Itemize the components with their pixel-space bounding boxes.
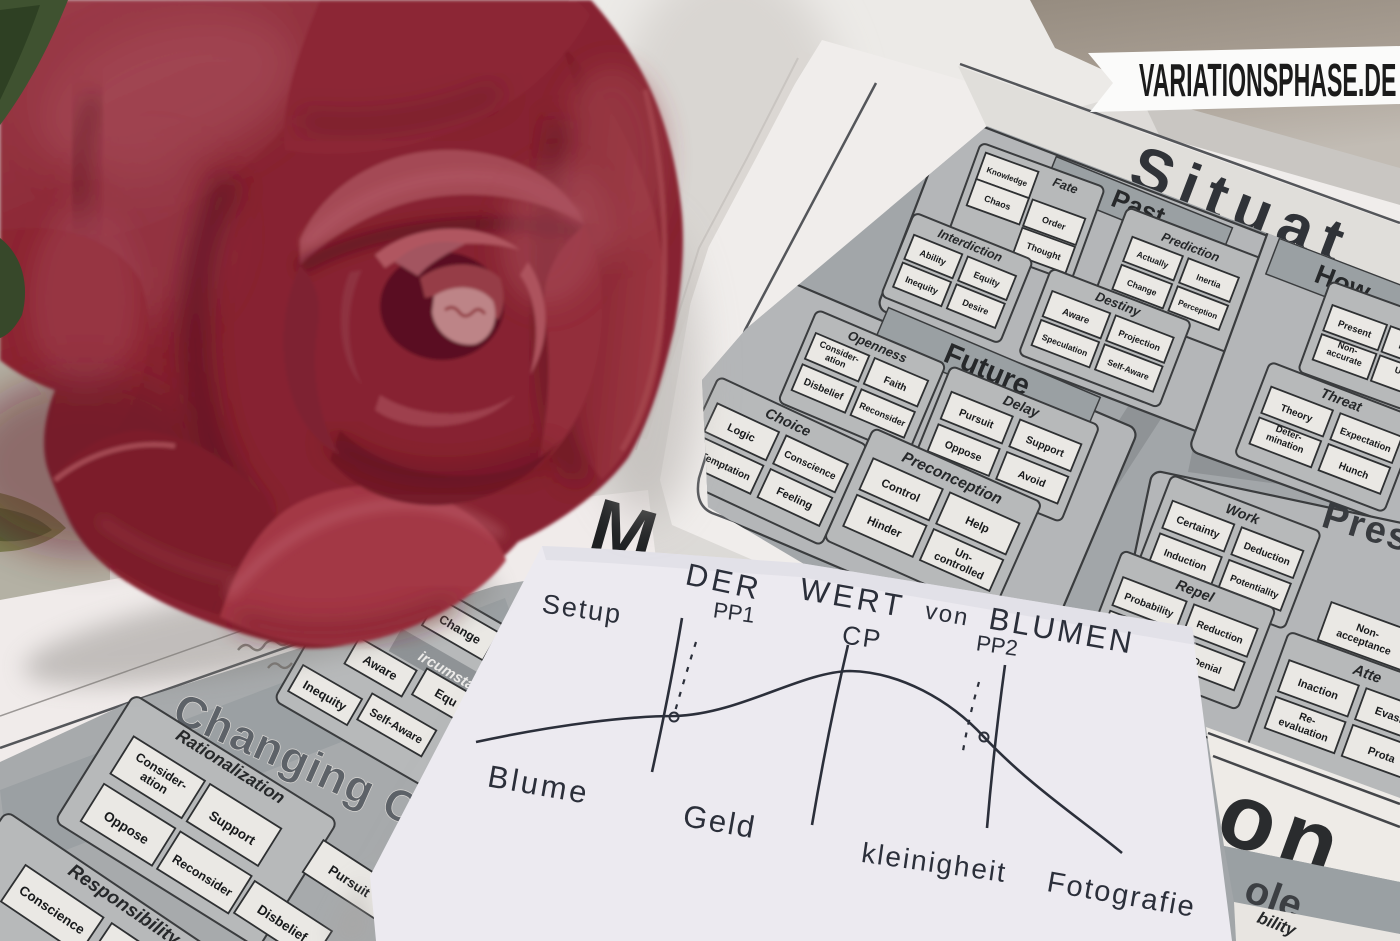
svg-text:VARIATIONSPHASE.DE: VARIATIONSPHASE.DE xyxy=(1139,54,1396,106)
